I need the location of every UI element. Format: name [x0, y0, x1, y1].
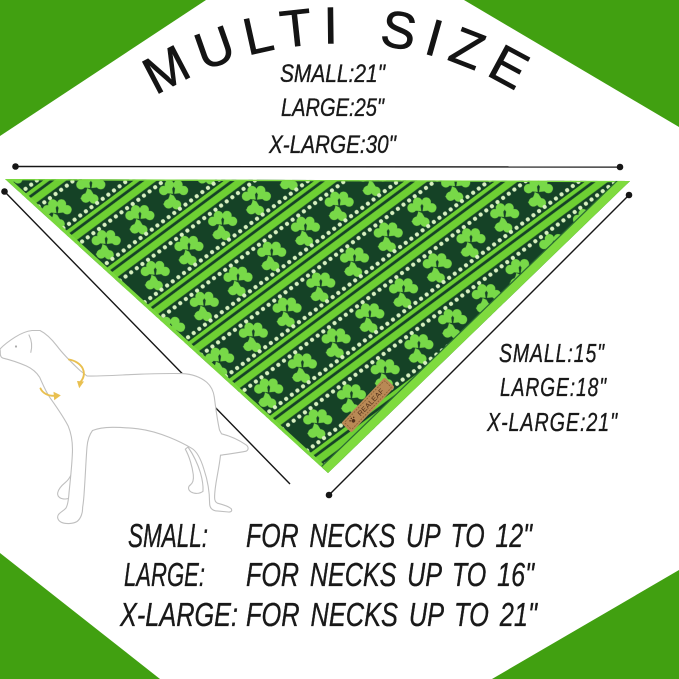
svg-text:X-LARGE:: X-LARGE: [119, 596, 238, 633]
svg-text:LARGE:25": LARGE:25" [281, 94, 385, 122]
svg-text:SMALL:15": SMALL:15" [499, 338, 605, 368]
svg-text:X-LARGE:30": X-LARGE:30" [268, 131, 397, 159]
svg-text:FOR NECKS UP TO 16": FOR NECKS UP TO 16" [246, 556, 535, 593]
svg-text:FOR NECKS UP TO 21": FOR NECKS UP TO 21" [246, 596, 538, 633]
svg-text:LARGE:: LARGE: [124, 556, 205, 593]
svg-text:X-LARGE:21": X-LARGE:21" [486, 407, 618, 437]
svg-text:FOR NECKS UP TO 12": FOR NECKS UP TO 12" [246, 517, 533, 554]
svg-text:SMALL:: SMALL: [128, 517, 208, 554]
svg-text:LARGE:18": LARGE:18" [500, 372, 607, 402]
svg-text:SMALL:21": SMALL:21" [280, 60, 386, 88]
